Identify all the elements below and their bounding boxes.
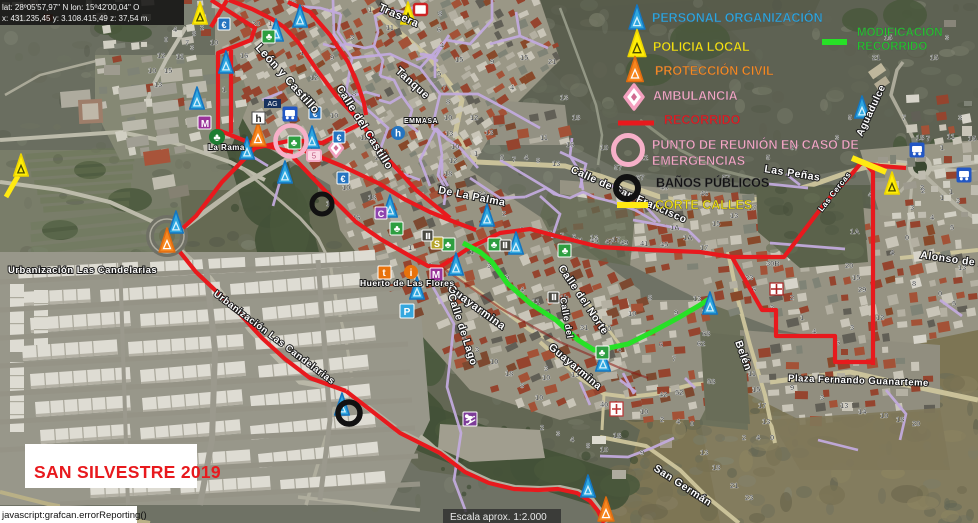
svg-text:POLICIA LOCAL: POLICIA LOCAL xyxy=(653,40,750,54)
svg-text:M: M xyxy=(201,119,209,130)
svg-text:EMERGENCIAS: EMERGENCIAS xyxy=(652,154,745,168)
svg-text:€: € xyxy=(340,174,345,184)
svg-text:♣: ♣ xyxy=(394,224,401,235)
svg-text:Escala aprox. 1:2.000: Escala aprox. 1:2.000 xyxy=(450,512,547,523)
svg-text:♣: ♣ xyxy=(266,32,273,43)
svg-text:PUNTO DE REUNIÓN EN CASO DE: PUNTO DE REUNIÓN EN CASO DE xyxy=(652,137,859,152)
svg-text:BAÑOS PÚBLICOS: BAÑOS PÚBLICOS xyxy=(656,175,769,190)
svg-text:PERSONAL ORGANIZACIÓN: PERSONAL ORGANIZACIÓN xyxy=(652,10,823,25)
svg-text:€: € xyxy=(221,20,226,30)
svg-text:PROTECCIÓN CIVIL: PROTECCIÓN CIVIL xyxy=(655,63,774,78)
svg-text:MODIFICACIÓN: MODIFICACIÓN xyxy=(857,26,943,39)
svg-text:EMMASA: EMMASA xyxy=(404,118,438,125)
svg-text:SAN SILVESTRE 2019: SAN SILVESTRE 2019 xyxy=(34,462,221,482)
svg-text:♣: ♣ xyxy=(562,246,569,257)
svg-text:P: P xyxy=(404,307,411,318)
svg-text:lat: 28º05'57,97'' N lon: 15º: lat: 28º05'57,97'' N lon: 15º42'00,04'' … xyxy=(2,3,139,12)
svg-text:⛷: ⛷ xyxy=(464,414,477,426)
svg-text:S: S xyxy=(434,239,440,249)
svg-text:♣: ♣ xyxy=(599,348,606,359)
svg-text:h: h xyxy=(255,114,261,125)
svg-text:♣: ♣ xyxy=(491,240,498,251)
svg-text:x: 431.235,45 y: 3.108.415,49: x: 431.235,45 y: 3.108.415,49 z: 37,54 m… xyxy=(2,14,150,23)
svg-text:€: € xyxy=(336,133,341,143)
svg-text:Ⅲ: Ⅲ xyxy=(425,232,431,241)
svg-text:CORTE CALLES: CORTE CALLES xyxy=(655,198,752,212)
svg-text:Huerto de Las Flores: Huerto de Las Flores xyxy=(360,278,455,288)
svg-text:AG: AG xyxy=(267,101,277,108)
svg-text:RECORRIDO: RECORRIDO xyxy=(664,113,741,127)
svg-text:RECORRIDO: RECORRIDO xyxy=(857,41,927,53)
svg-text:♣: ♣ xyxy=(445,240,452,251)
svg-text:AMBULANCIA: AMBULANCIA xyxy=(653,89,738,103)
svg-text:Ⅲ: Ⅲ xyxy=(502,241,508,250)
svg-text:♣: ♣ xyxy=(291,138,298,149)
svg-text:La Rama: La Rama xyxy=(208,143,245,152)
svg-text:C: C xyxy=(378,209,385,219)
svg-text:javascript:grafcan.errorReport: javascript:grafcan.errorReporting() xyxy=(1,510,147,521)
svg-text:Ⅲ: Ⅲ xyxy=(551,293,557,302)
svg-text:5: 5 xyxy=(312,152,317,161)
svg-text:h: h xyxy=(395,129,401,140)
svg-text:Urbanización Las Candelarias: Urbanización Las Candelarias xyxy=(8,265,157,276)
